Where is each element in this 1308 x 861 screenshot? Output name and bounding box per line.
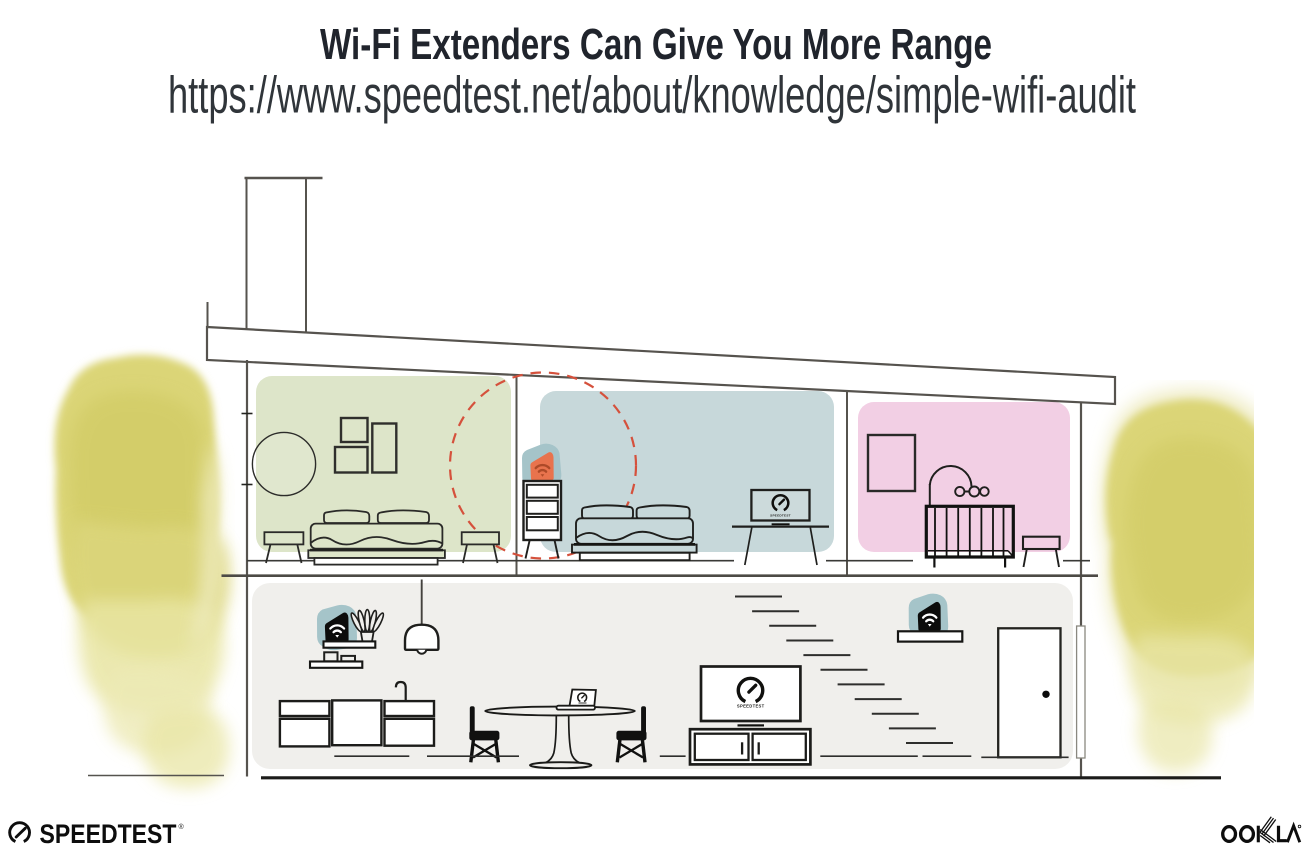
svg-text:SPEEDTEST: SPEEDTEST xyxy=(770,514,791,518)
svg-text:SPEEDTEST: SPEEDTEST xyxy=(40,819,177,849)
svg-text:SPEEDTEST: SPEEDTEST xyxy=(737,704,765,709)
svg-text:https://www.speedtest.net/abou: https://www.speedtest.net/about/knowledg… xyxy=(168,67,1136,125)
svg-text:Wi-Fi Extenders Can Give You M: Wi-Fi Extenders Can Give You More Range xyxy=(320,20,992,69)
svg-text:®: ® xyxy=(179,823,185,831)
